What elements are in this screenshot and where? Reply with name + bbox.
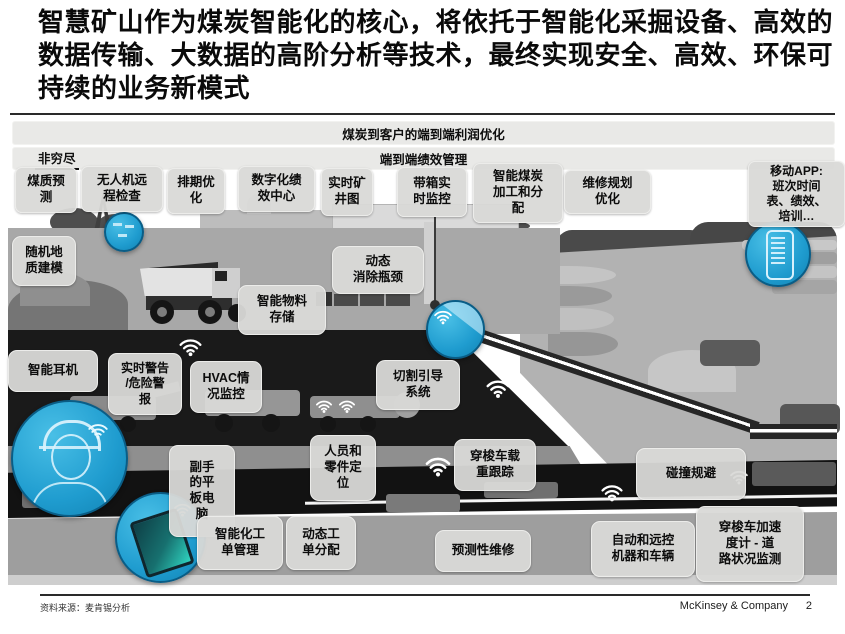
haul-truck-window <box>215 271 227 281</box>
banner-performance-label: 端到端绩效管理 <box>380 149 468 168</box>
machine-wheel <box>120 416 136 432</box>
machine-wheel <box>215 414 233 432</box>
wifi-icon <box>424 455 452 477</box>
machine-wheel <box>360 416 376 432</box>
shoulders-sketch <box>31 482 109 514</box>
footer-page-number: 2 <box>798 600 812 612</box>
callout-shuttle-accelerometer-road-monitoring: 穿梭车加速 度计 - 道 路状况监测 <box>696 506 804 582</box>
feature-mobile-app: 移动APP: 班次时间 表、绩效、 培训… <box>748 161 845 227</box>
wifi-icon <box>433 309 453 325</box>
slide: 智慧矿山作为煤炭智能化的核心，将依托于智能化采掘设备、高效的数据传输、大数据的高… <box>0 0 845 634</box>
pit-terrace <box>548 332 618 356</box>
conveyor-highlight-circle <box>426 300 485 359</box>
callout-predictive-maintenance: 预测性维修 <box>435 530 531 572</box>
callout-collision-avoidance: 碰撞规避 <box>636 448 746 500</box>
machine-wheel <box>320 416 336 432</box>
callout-smart-work-order-management: 智能化工 单管理 <box>197 516 283 570</box>
drone-highlight-circle <box>104 212 144 252</box>
callout-automated-remote-machines: 自动和远控 机器和车辆 <box>591 521 695 577</box>
callout-dynamic-debottlenecking: 动态 消除瓶颈 <box>332 246 424 294</box>
banner-profit-label: 煤炭到客户的端到端利润优化 <box>342 124 505 143</box>
footer-brand: McKinsey & Company <box>620 600 788 612</box>
wifi-icon <box>87 422 109 439</box>
road-train-trailer <box>334 294 358 306</box>
wifi-icon <box>315 399 333 413</box>
feature-digital-performance-center: 数字化绩 效中心 <box>238 166 315 212</box>
helmet-brim-sketch <box>39 446 99 449</box>
callout-dynamic-work-order-assignment: 动态工 单分配 <box>286 516 356 570</box>
footer-source: 资料来源：麦肯锡分析 <box>40 601 130 614</box>
callout-line <box>434 216 436 304</box>
conveyor-horizontal <box>750 424 837 439</box>
wifi-icon <box>600 483 624 502</box>
feature-maintenance-planning: 维修规划 优化 <box>564 170 651 214</box>
wifi-icon <box>178 337 203 357</box>
feature-drone-remote-inspection: 无人机远 程检查 <box>81 166 163 212</box>
feature-schedule-optimization: 排期优 化 <box>167 168 225 214</box>
drone-icon <box>113 223 122 226</box>
smartphone-screen-lines <box>771 237 785 239</box>
callout-cutting-guidance-system: 切割引导 系统 <box>376 360 460 410</box>
feature-realtime-mine-map: 实时矿 井图 <box>321 168 373 216</box>
banner-profit-optimization: 煤炭到客户的端到端利润优化 <box>12 121 835 145</box>
wifi-icon <box>338 399 356 413</box>
truck-wheel-hub <box>157 307 167 317</box>
feature-coal-quality-prediction: 煤质预 测 <box>15 167 77 213</box>
callout-stochastic-geologic-modeling: 随机地 质建模 <box>12 236 76 286</box>
footer-divider <box>40 594 810 596</box>
road-train-trailer <box>360 294 384 306</box>
smartphone-highlight-circle <box>745 221 811 287</box>
miner-helmet-highlight-circle <box>11 400 128 517</box>
callout-realtime-warning-hazard-alert: 实时警告 /危险警 报 <box>108 353 182 415</box>
shuttle-car <box>386 494 460 512</box>
loader-vehicle <box>700 340 760 366</box>
callout-shuttle-car-load-tracking: 穿梭车载 重跟踪 <box>454 439 536 491</box>
dump-truck <box>752 462 836 486</box>
callout-smart-headset: 智能耳机 <box>8 350 98 392</box>
callout-hvac-condition-monitoring: HVAC情 况监控 <box>190 361 262 413</box>
feature-smart-coal-processing: 智能煤炭 加工和分 配 <box>473 163 563 223</box>
callout-people-parts-positioning: 人员和 零件定 位 <box>310 435 376 501</box>
feature-container-realtime-monitoring: 带箱实 时监控 <box>397 167 467 217</box>
slide-title: 智慧矿山作为煤炭智能化的核心，将依托于智能化采掘设备、高效的数据传输、大数据的高… <box>38 6 834 105</box>
machine-wheel <box>262 414 280 432</box>
road-train-trailer <box>386 294 410 306</box>
truck-wheel-hub <box>205 307 215 317</box>
wifi-icon <box>485 378 511 399</box>
callout-smart-material-storage: 智能物料 存储 <box>238 285 326 335</box>
title-divider <box>10 113 835 115</box>
